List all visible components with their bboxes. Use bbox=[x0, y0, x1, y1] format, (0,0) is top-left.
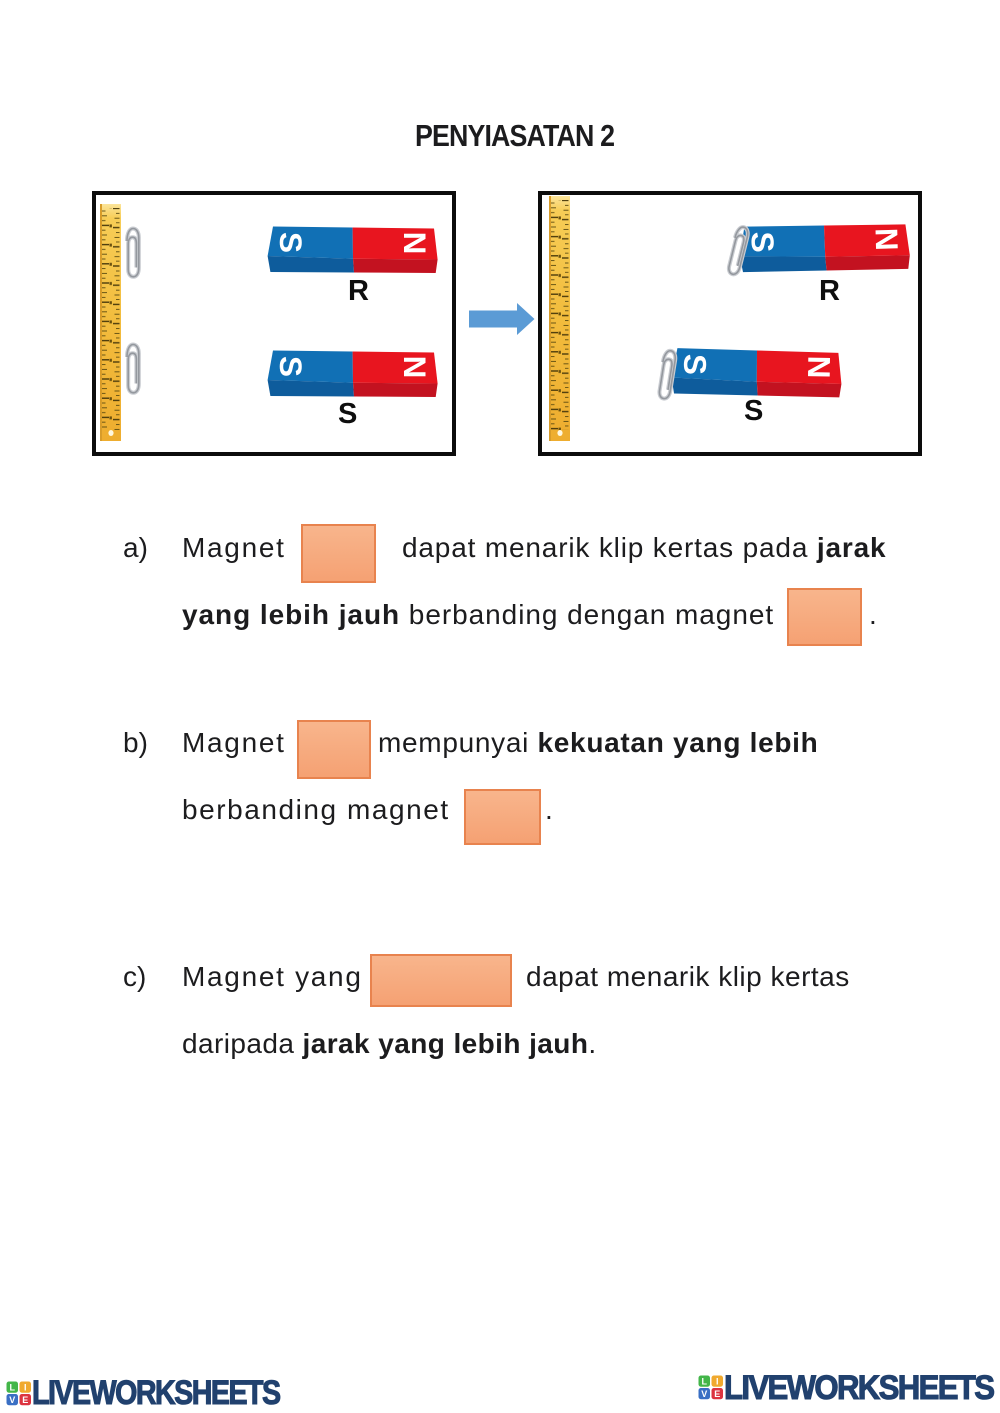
svg-text:E: E bbox=[22, 1395, 28, 1405]
svg-text:S: S bbox=[273, 232, 309, 253]
svg-text:N: N bbox=[869, 228, 906, 252]
svg-text:V: V bbox=[701, 1389, 707, 1399]
svg-text:S: S bbox=[677, 354, 713, 376]
svg-text:V: V bbox=[9, 1395, 15, 1405]
svg-text:E: E bbox=[714, 1389, 720, 1399]
svg-text:I: I bbox=[24, 1382, 27, 1392]
svg-text:N: N bbox=[397, 356, 433, 379]
svg-text:N: N bbox=[801, 355, 837, 378]
svg-text:L: L bbox=[9, 1382, 15, 1392]
svg-text:I: I bbox=[716, 1376, 719, 1386]
svg-text:L: L bbox=[701, 1376, 707, 1386]
svg-text:N: N bbox=[397, 232, 433, 255]
svg-text:S: S bbox=[273, 356, 309, 377]
